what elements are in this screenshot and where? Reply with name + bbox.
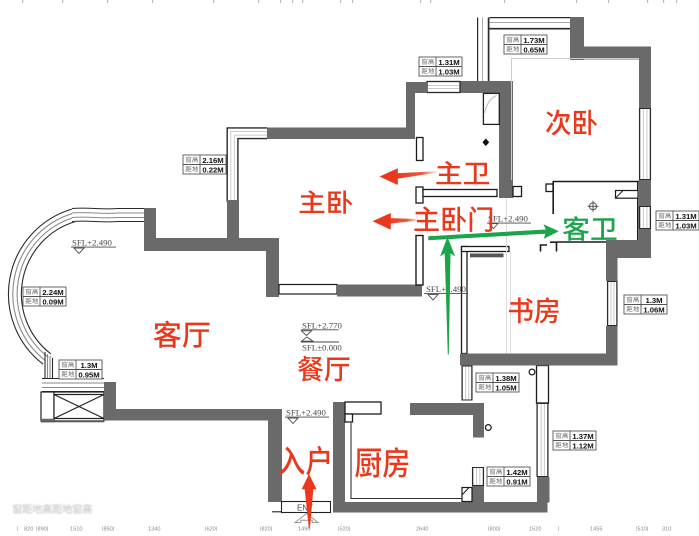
svg-text:820: 820: [24, 527, 33, 532]
svg-text:1.42M: 1.42M: [506, 468, 527, 477]
svg-text:1.31M: 1.31M: [438, 58, 459, 67]
svg-text:0.91M: 0.91M: [506, 477, 527, 486]
svg-text:1.37M: 1.37M: [572, 432, 593, 441]
svg-text:SFL±0.000: SFL±0.000: [302, 343, 342, 353]
svg-text:|510|: |510|: [636, 527, 648, 532]
svg-text:|620|: |620|: [205, 527, 217, 532]
svg-text:|800|: |800|: [488, 527, 500, 532]
svg-text:|: |: [558, 527, 559, 532]
svg-text:2640: 2640: [416, 527, 428, 532]
svg-text:1340: 1340: [148, 527, 160, 532]
svg-text:2.24M: 2.24M: [42, 288, 63, 297]
svg-text:1.06M: 1.06M: [643, 305, 664, 314]
svg-text:|820|: |820|: [260, 527, 272, 532]
svg-text:0.22M: 0.22M: [202, 165, 223, 174]
svg-text:|890|: |890|: [36, 527, 48, 532]
svg-text:0.09M: 0.09M: [42, 297, 63, 306]
svg-text:1.31M: 1.31M: [675, 212, 696, 221]
svg-text:SFL+2.490: SFL+2.490: [72, 238, 113, 248]
svg-text:SFL+2.490: SFL+2.490: [286, 408, 327, 418]
svg-text:2.16M: 2.16M: [202, 156, 223, 165]
svg-text:|520|: |520|: [338, 527, 350, 532]
svg-text:1.3M: 1.3M: [80, 361, 97, 370]
svg-text:1.73M: 1.73M: [523, 36, 544, 45]
svg-text:1490: 1490: [298, 527, 310, 532]
svg-text:310: 310: [662, 527, 671, 532]
svg-text:1.12M: 1.12M: [572, 441, 593, 450]
svg-text:SFL+2.770: SFL+2.770: [302, 321, 343, 331]
svg-text:|850|: |850|: [102, 527, 114, 532]
svg-text:1.3M: 1.3M: [645, 296, 662, 305]
svg-text:1510: 1510: [70, 527, 82, 532]
svg-text:1.38M: 1.38M: [495, 374, 516, 383]
svg-text:0.95M: 0.95M: [78, 370, 99, 379]
svg-text:1.03M: 1.03M: [675, 221, 696, 230]
svg-text:SFL+2.490: SFL+2.490: [488, 214, 529, 224]
svg-text:|: |: [17, 527, 18, 532]
svg-text:0.65M: 0.65M: [523, 45, 544, 54]
svg-text:1.05M: 1.05M: [495, 383, 516, 392]
svg-text:1.03M: 1.03M: [438, 67, 459, 76]
svg-text:1520: 1520: [529, 527, 541, 532]
svg-text:1455: 1455: [590, 527, 602, 532]
